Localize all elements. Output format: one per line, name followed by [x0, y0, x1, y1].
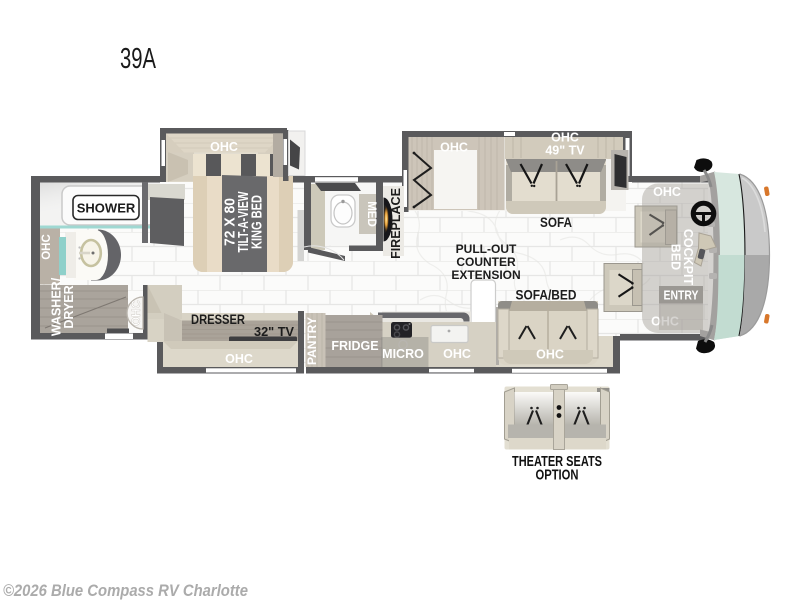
- svg-text:OHC: OHC: [443, 347, 471, 361]
- svg-text:39A: 39A: [120, 43, 156, 75]
- svg-text:ENTRY: ENTRY: [664, 289, 700, 303]
- svg-text:FIREPLACE: FIREPLACE: [389, 188, 403, 259]
- svg-text:KING BED: KING BED: [249, 195, 266, 249]
- svg-text:DRYER: DRYER: [62, 285, 76, 328]
- svg-text:MICRO: MICRO: [382, 347, 424, 361]
- svg-text:OHC: OHC: [131, 300, 143, 326]
- svg-text:EXTENSION: EXTENSION: [451, 268, 520, 282]
- svg-text:PANTRY: PANTRY: [305, 317, 319, 365]
- svg-text:PULL-OUT: PULL-OUT: [456, 242, 517, 256]
- svg-text:OHC: OHC: [551, 131, 579, 145]
- svg-text:MED: MED: [365, 201, 377, 227]
- svg-text:BED: BED: [669, 244, 683, 270]
- svg-text:OHC: OHC: [210, 140, 238, 154]
- svg-text:OHC: OHC: [41, 234, 53, 260]
- svg-text:SHOWER: SHOWER: [77, 201, 136, 216]
- svg-text:OPTION: OPTION: [536, 467, 579, 484]
- svg-text:OHC: OHC: [225, 352, 253, 366]
- svg-text:OHC: OHC: [440, 141, 468, 155]
- svg-text:©2026 Blue Compass RV Charlott: ©2026 Blue Compass RV Charlotte: [3, 582, 248, 600]
- svg-text:OHC: OHC: [536, 348, 564, 362]
- svg-text:DRESSER: DRESSER: [191, 311, 245, 327]
- svg-text:OHC: OHC: [653, 185, 681, 199]
- svg-text:SOFA: SOFA: [540, 215, 572, 230]
- svg-text:SOFA/BED: SOFA/BED: [516, 288, 577, 303]
- svg-text:49" TV: 49" TV: [545, 144, 585, 158]
- svg-text:FRIDGE: FRIDGE: [331, 339, 378, 353]
- svg-text:COUNTER: COUNTER: [456, 255, 516, 269]
